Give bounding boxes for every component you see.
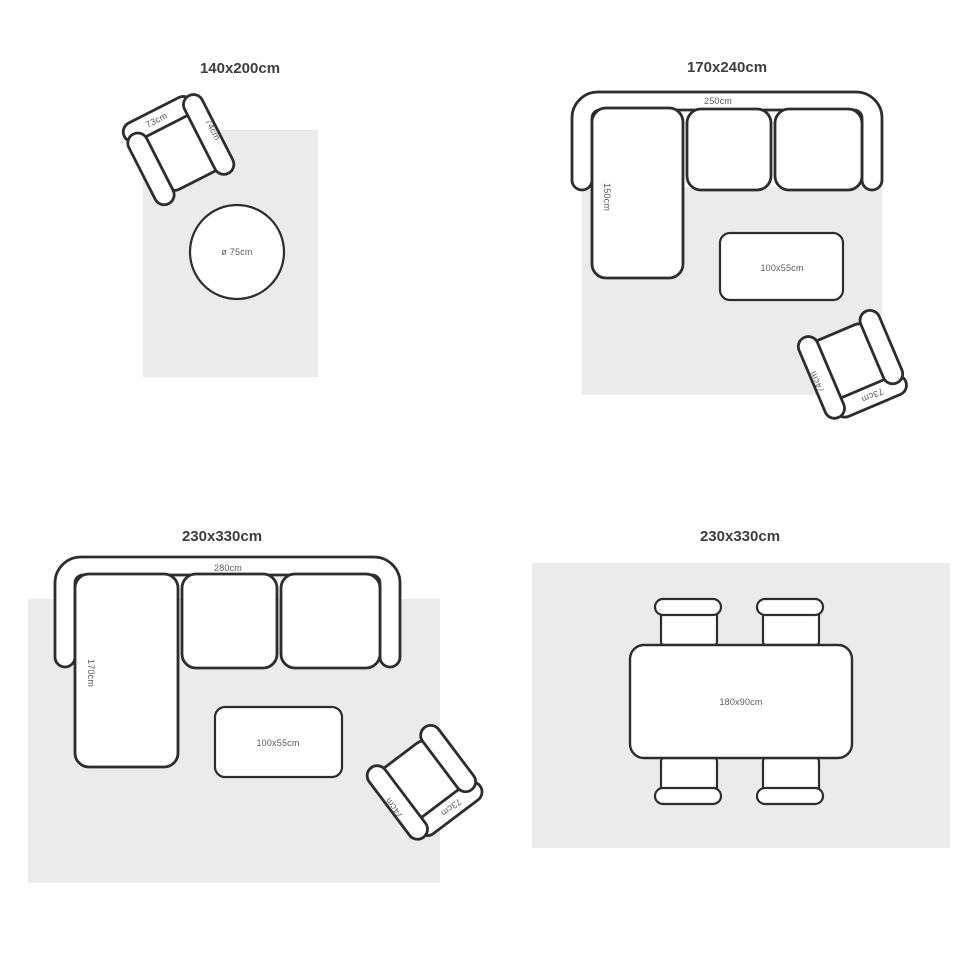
sofa-cushion bbox=[281, 574, 380, 668]
rug-size-guide: 140x200cm ø 75cm 73cm 74cm 170x240cm 250… bbox=[0, 0, 970, 970]
dining-chair-backrest bbox=[757, 788, 823, 804]
round-table-label: ø 75cm bbox=[221, 247, 252, 257]
panel-title: 170x240cm bbox=[687, 59, 767, 76]
dining-chair-backrest bbox=[655, 788, 721, 804]
sofa-cushion bbox=[687, 109, 771, 190]
sofa-depth-label: 150cm bbox=[602, 183, 612, 211]
sofa-width-label: 250cm bbox=[704, 96, 732, 106]
coffee-table-label: 100x55cm bbox=[760, 263, 803, 273]
coffee-table-label: 100x55cm bbox=[256, 738, 299, 748]
sofa-cushion bbox=[182, 574, 277, 668]
sofa-depth-label: 170cm bbox=[86, 659, 96, 687]
size-guide-diagram: 140x200cm ø 75cm 73cm 74cm 170x240cm 250… bbox=[0, 0, 970, 970]
dining-chair bbox=[655, 758, 721, 804]
panel-title: 230x330cm bbox=[182, 528, 262, 545]
panel-title: 230x330cm bbox=[700, 528, 780, 545]
panel-title: 140x200cm bbox=[200, 60, 280, 77]
panel-230x330-sofa: 230x330cm 280cm 170cm 100x55cm 73cm 74cm bbox=[28, 528, 487, 883]
panel-170x240: 170x240cm 250cm 150cm 100x55cm 73cm 74cm bbox=[572, 59, 910, 425]
panel-230x330-dining: 230x330cm 180x90cm bbox=[532, 528, 950, 848]
dining-chair bbox=[757, 599, 823, 645]
dining-chair bbox=[655, 599, 721, 645]
dining-table-label: 180x90cm bbox=[719, 697, 762, 707]
sofa-cushion bbox=[775, 109, 862, 190]
dining-chair-backrest bbox=[757, 599, 823, 615]
panel-140x200: 140x200cm ø 75cm 73cm 74cm bbox=[119, 60, 318, 377]
dining-chair-backrest bbox=[655, 599, 721, 615]
dining-chair bbox=[757, 758, 823, 804]
sofa-width-label: 280cm bbox=[214, 563, 242, 573]
